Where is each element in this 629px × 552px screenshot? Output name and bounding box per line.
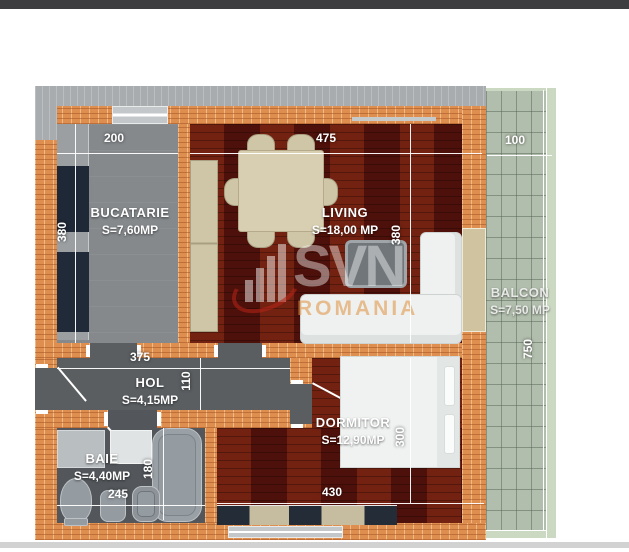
bedroom-window [228,526,343,538]
room-label-living: LIVING S=18,00 MP [293,204,397,238]
dim-line-living-width [190,153,482,154]
wall-top-brick [35,106,486,124]
wall-top-concrete [35,86,486,106]
balcony-edge-top [486,88,546,91]
door-jamb [86,345,90,357]
balcony-railing-bottom [486,530,546,538]
room-label-balcon: BALCON S=7,50 MP [480,284,560,318]
door-jamb [214,345,218,357]
room-label-dormitor: DORMITOR S=12,90MP [298,414,408,448]
room-area-hol: S=4,15MP [98,392,202,408]
sink [132,486,160,522]
page-bottom-bar [0,542,629,548]
watermark-brand-text: SVN [293,238,403,296]
wardrobe [217,505,397,525]
dim-label-bath-width: 245 [108,487,128,501]
room-area-bucatarie: S=7,60MP [78,222,182,238]
dim-line-bath-height [163,428,164,520]
door-jamb [36,410,48,414]
bed-pillow [444,414,455,454]
wall-bath-bedroom [205,428,217,523]
room-area-balcon: S=7,50 MP [480,302,560,318]
room-label-baie: BAIE S=4,40MP [52,450,152,484]
bed-pillow [444,366,455,406]
room-name-baie: BAIE [52,450,152,468]
living-hall-opening [218,343,262,358]
door-jamb [36,364,48,368]
dim-label-hall-width: 375 [130,350,150,364]
room-area-living: S=18,00 MP [293,222,397,238]
kitchen-stove-unit [57,252,89,332]
kitchen-window [112,106,168,124]
watermark-region-text: ROMANIA [297,298,418,319]
dim-label-bedroom-width: 430 [322,485,342,499]
door-jamb [291,380,303,384]
wall-bath-top [35,410,312,428]
dim-line-kitchen-height [75,124,76,343]
living-cabinet [190,160,218,332]
bathroom-door-opening [108,410,157,428]
dim-line-hall-width [57,368,290,369]
dim-label-kitchen-width: 200 [104,131,124,145]
entrance-door-opening [35,368,57,410]
toilet [60,478,92,522]
dim-line-living-height [410,124,411,343]
room-name-dormitor: DORMITOR [298,414,408,432]
toilet-base [64,518,88,526]
door-jamb [104,412,108,426]
dim-label-balcony-length: 750 [521,329,535,369]
room-name-hol: HOL [98,374,202,392]
dim-label-living-width: 475 [316,131,336,145]
dim-label-balcony-width: 100 [505,133,525,147]
dim-line-bath-width [57,505,205,506]
room-label-hol: HOL S=4,15MP [98,374,202,408]
dim-line-bedroom-height [410,358,411,503]
dim-label-kitchen-height: 380 [55,212,69,252]
room-area-baie: S=4,40MP [52,468,152,484]
living-radiator [352,117,436,121]
room-name-living: LIVING [293,204,397,222]
room-label-bucatarie: BUCATARIE S=7,60MP [78,204,182,238]
floor-plan-canvas: SVN ROMANIA 200 475 100 380 380 375 110 … [0,0,629,552]
room-name-bucatarie: BUCATARIE [78,204,182,222]
page-top-bar [0,0,629,9]
room-name-balcon: BALCON [480,284,560,302]
room-area-dormitor: S=12,90MP [298,432,408,448]
door-jamb [262,345,266,357]
wall-left-top-block [35,106,57,140]
door-jamb [157,412,161,426]
dim-line-bedroom-width [217,503,484,504]
